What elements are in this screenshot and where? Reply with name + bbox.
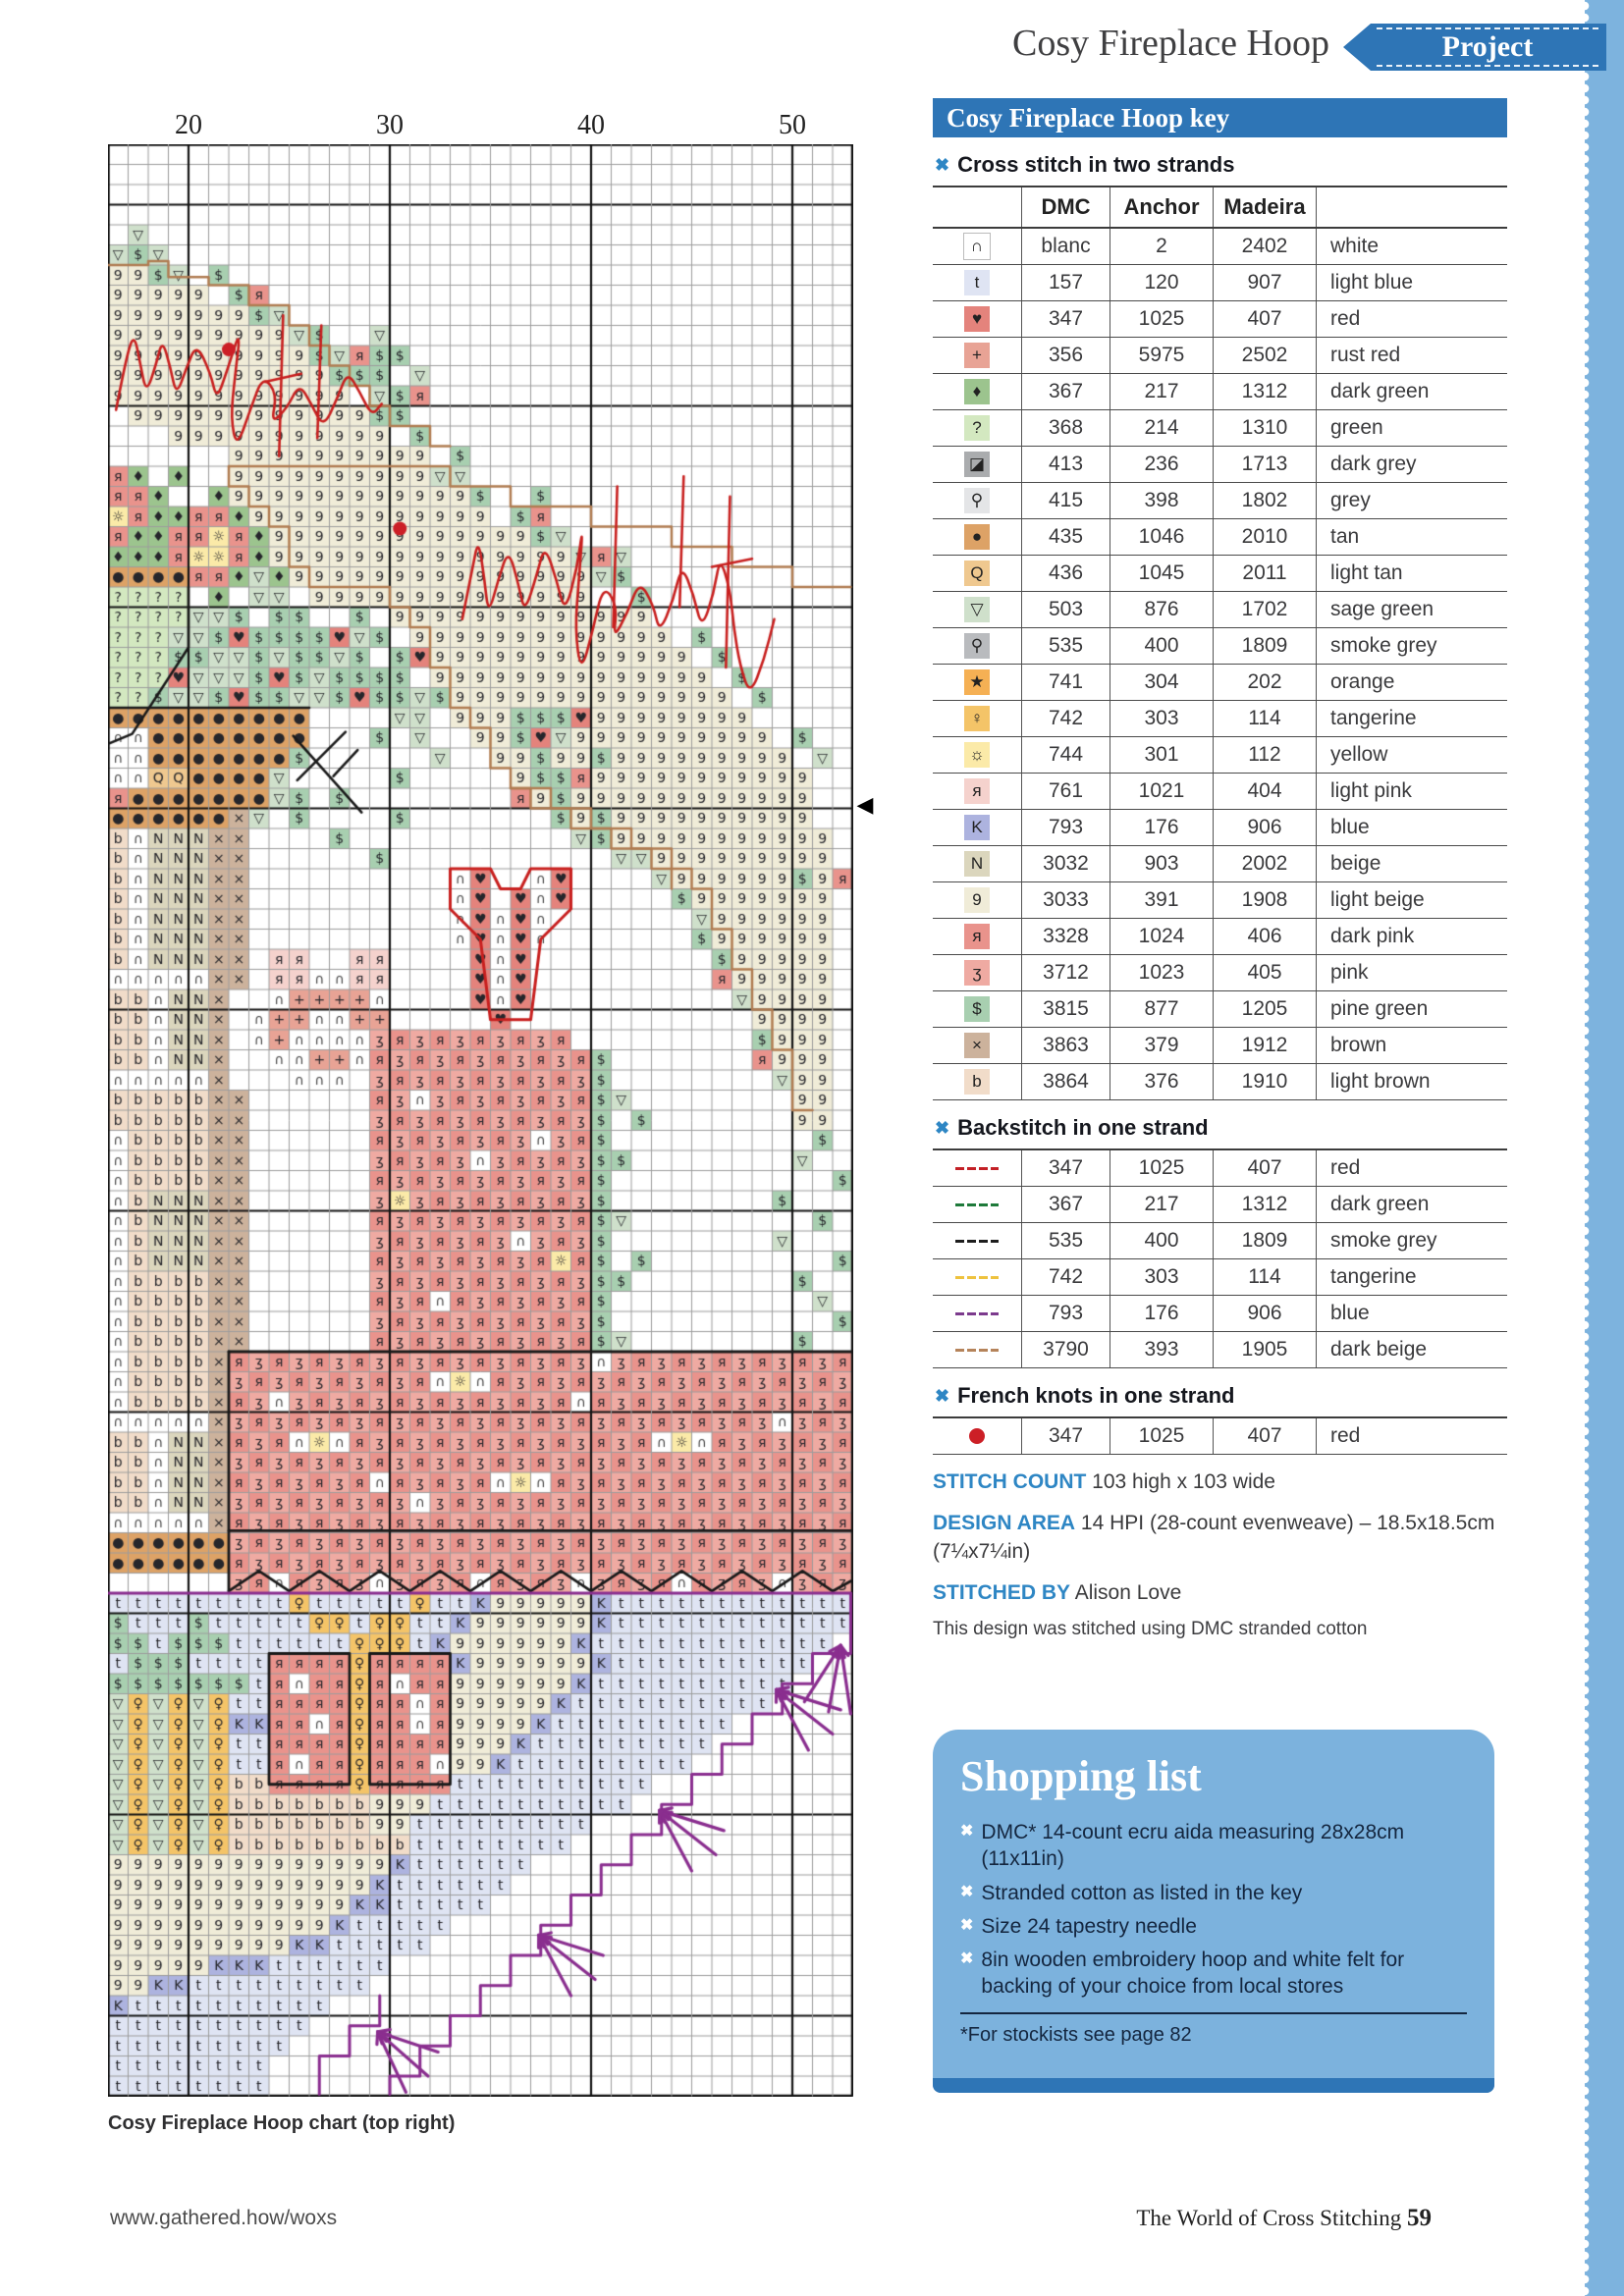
key-row: $38158771205pine green: [933, 991, 1507, 1028]
anchor-number: 1024: [1110, 919, 1213, 954]
colour-name: brown: [1316, 1028, 1507, 1063]
key-symbol-cell: $: [933, 991, 1021, 1027]
dmc-number: 3712: [1021, 955, 1110, 990]
key-symbol-cell: N: [933, 846, 1021, 881]
key-row: 930333911908light beige: [933, 882, 1507, 919]
key-row: ?3682141310green: [933, 410, 1507, 447]
key-row: я7611021404light pink: [933, 774, 1507, 810]
key-row: ʒ37121023405pink: [933, 955, 1507, 991]
dmc-number: 503: [1021, 592, 1110, 627]
key-row: +35659752502rust red: [933, 338, 1507, 374]
footer-page-number: 59: [1407, 2205, 1432, 2231]
dmc-number: 435: [1021, 519, 1110, 555]
dmc-number: 535: [1021, 628, 1110, 664]
dmc-number: 3032: [1021, 846, 1110, 881]
shopping-item-text: DMC* 14-count ecru aida measuring 28x28c…: [981, 1819, 1467, 1873]
madeira-number: 404: [1213, 774, 1316, 809]
dmc-number: 436: [1021, 556, 1110, 591]
colour-name: smoke grey: [1316, 628, 1507, 664]
madeira-number: 1312: [1213, 1187, 1316, 1222]
key-symbol-cell: ☼: [933, 737, 1021, 773]
madeira-number: 1205: [1213, 991, 1316, 1027]
colour-name: grey: [1316, 483, 1507, 518]
colour-name: tan: [1316, 519, 1507, 555]
key-symbol-cell: ♥: [933, 301, 1021, 337]
dmc-number: 368: [1021, 410, 1110, 446]
anchor-number: 1023: [1110, 955, 1213, 990]
dmc-number: 347: [1021, 1418, 1110, 1454]
chart-center-marker-icon: ◀: [857, 794, 874, 816]
key-symbol-cell: Q: [933, 556, 1021, 591]
key-col-dmc: DMC: [1021, 187, 1110, 227]
anchor-number: 1045: [1110, 556, 1213, 591]
key-row: ☼744301112yellow: [933, 737, 1507, 774]
footer-magazine: The World of Cross Stitching 59: [1136, 2205, 1432, 2232]
madeira-number: 405: [1213, 955, 1316, 990]
dmc-number: 356: [1021, 338, 1110, 373]
dmc-number: 742: [1021, 701, 1110, 736]
thread-symbol: ʒ: [964, 960, 990, 986]
backstitch-line-cell: [933, 1296, 1021, 1331]
anchor-number: 217: [1110, 1187, 1213, 1222]
backstitch-line-cell: [933, 1259, 1021, 1295]
french-knots-icon: ✖: [935, 1386, 949, 1407]
madeira-number: 407: [1213, 301, 1316, 337]
key-symbol-cell: 9: [933, 882, 1021, 918]
thread-symbol: N: [964, 851, 990, 877]
madeira-number: 1905: [1213, 1332, 1316, 1367]
anchor-number: 120: [1110, 265, 1213, 300]
thread-symbol: ⚲: [964, 488, 990, 513]
backstitch-line-sample: [955, 1312, 999, 1315]
madeira-number: 2402: [1213, 229, 1316, 264]
key-row: ♥3471025407red: [933, 301, 1507, 338]
madeira-number: 907: [1213, 265, 1316, 300]
dmc-number: 415: [1021, 483, 1110, 518]
thread-symbol: ●: [964, 524, 990, 550]
backstitch-line-sample: [955, 1276, 999, 1279]
madeira-number: 1908: [1213, 882, 1316, 918]
anchor-number: 5975: [1110, 338, 1213, 373]
anchor-number: 2: [1110, 229, 1213, 264]
key-symbol-cell: ∩: [933, 229, 1021, 264]
madeira-number: 1910: [1213, 1064, 1316, 1099]
french-knot-cell: [933, 1418, 1021, 1454]
thread-symbol: ☼: [964, 742, 990, 768]
dmc-number: 3328: [1021, 919, 1110, 954]
shopping-list-divider: [960, 2012, 1467, 2014]
colour-name: sage green: [1316, 592, 1507, 627]
colour-name: pine green: [1316, 991, 1507, 1027]
bullet-x-icon: ✖: [960, 1949, 973, 2001]
key-row: ×38633791912brown: [933, 1028, 1507, 1064]
shopping-list-item: ✖Stranded cotton as listed in the key: [960, 1880, 1467, 1906]
anchor-number: 379: [1110, 1028, 1213, 1063]
key-row: ∩blanc22402white: [933, 229, 1507, 265]
anchor-number: 236: [1110, 447, 1213, 482]
dmc-number: 347: [1021, 301, 1110, 337]
dmc-number: 3864: [1021, 1064, 1110, 1099]
anchor-number: 303: [1110, 1259, 1213, 1295]
key-symbol-cell: ◪: [933, 447, 1021, 482]
colour-name: blue: [1316, 1296, 1507, 1331]
shopping-item-text: Size 24 tapestry needle: [981, 1913, 1467, 1940]
stitch-count-value: 103 high x 103 wide: [1092, 1470, 1275, 1493]
anchor-number: 1025: [1110, 1150, 1213, 1186]
shopping-list-box: Shopping list ✖DMC* 14-count ecru aida m…: [933, 1730, 1494, 2093]
thread-symbol: ×: [964, 1033, 990, 1058]
cross-stitch-section-header: ✖ Cross stitch in two strands: [935, 152, 1507, 178]
colour-name: red: [1316, 1418, 1507, 1454]
colour-name: light brown: [1316, 1064, 1507, 1099]
dmc-number: 3863: [1021, 1028, 1110, 1063]
key-symbol-cell: b: [933, 1064, 1021, 1099]
key-row: ⚲5354001809smoke grey: [933, 628, 1507, 665]
design-note: This design was stitched using DMC stran…: [933, 1619, 1507, 1640]
key-table-header-row: DMC Anchor Madeira: [933, 187, 1507, 229]
madeira-number: 2011: [1213, 556, 1316, 591]
anchor-number: 400: [1110, 628, 1213, 664]
backstitch-line-cell: [933, 1332, 1021, 1367]
shopping-list-item: ✖Size 24 tapestry needle: [960, 1913, 1467, 1940]
shopping-item-text: Stranded cotton as listed in the key: [981, 1880, 1467, 1906]
thread-symbol: t: [964, 270, 990, 295]
cross-stitch-icon: ✖: [935, 155, 949, 176]
key-col-anchor: Anchor: [1110, 187, 1213, 227]
key-symbol-cell: ♀: [933, 701, 1021, 736]
french-knots-table: 3471025407red: [933, 1416, 1507, 1455]
key-symbol-cell: ▽: [933, 592, 1021, 627]
backstitch-row: 37903931905dark beige: [933, 1332, 1507, 1368]
thread-symbol: ⚲: [964, 633, 990, 659]
key-symbol-cell: ⚲: [933, 628, 1021, 664]
anchor-number: 214: [1110, 410, 1213, 446]
shopping-list-title: Shopping list: [960, 1751, 1467, 1801]
colour-name: light tan: [1316, 556, 1507, 591]
colour-name: dark grey: [1316, 447, 1507, 482]
madeira-number: 906: [1213, 1296, 1316, 1331]
anchor-number: 391: [1110, 882, 1213, 918]
thread-symbol: ♀: [964, 706, 990, 731]
key-symbol-cell: ʒ: [933, 955, 1021, 990]
anchor-number: 376: [1110, 1064, 1213, 1099]
dmc-number: 535: [1021, 1223, 1110, 1258]
backstitch-section-title: Backstitch in one strand: [957, 1115, 1209, 1141]
key-row: K793176906blue: [933, 810, 1507, 846]
key-symbol-cell: ⚲: [933, 483, 1021, 518]
madeira-number: 112: [1213, 737, 1316, 773]
colour-name: dark beige: [1316, 1332, 1507, 1367]
chart-axis-label: 20: [175, 110, 202, 141]
chart-caption: Cosy Fireplace Hoop chart (top right): [108, 2112, 455, 2135]
footer-url: www.gathered.how/woxs: [110, 2207, 337, 2230]
colour-name: blue: [1316, 810, 1507, 845]
cross-stitch-section-title: Cross stitch in two strands: [957, 152, 1234, 178]
backstitch-row: 5354001809smoke grey: [933, 1223, 1507, 1259]
colour-name: pink: [1316, 955, 1507, 990]
thread-symbol: +: [964, 343, 990, 368]
madeira-number: 2010: [1213, 519, 1316, 555]
thread-symbol: ★: [964, 669, 990, 695]
key-row: ♀742303114tangerine: [933, 701, 1507, 737]
key-symbol-cell: ●: [933, 519, 1021, 555]
thread-symbol: Q: [964, 561, 990, 586]
colour-name: white: [1316, 229, 1507, 264]
dmc-number: 3815: [1021, 991, 1110, 1027]
colour-name: dark green: [1316, 1187, 1507, 1222]
anchor-number: 400: [1110, 1223, 1213, 1258]
madeira-number: 407: [1213, 1150, 1316, 1186]
anchor-number: 301: [1110, 737, 1213, 773]
key-symbol-cell: я: [933, 774, 1021, 809]
key-symbol-cell: +: [933, 338, 1021, 373]
dmc-number: 413: [1021, 447, 1110, 482]
dmc-number: 761: [1021, 774, 1110, 809]
colour-name: orange: [1316, 665, 1507, 700]
anchor-number: 1025: [1110, 1418, 1213, 1454]
french-knot-dot: [969, 1428, 985, 1444]
french-knots-section-header: ✖ French knots in one strand: [935, 1383, 1507, 1409]
bullet-x-icon: ✖: [960, 1916, 973, 1940]
key-title: Cosy Fireplace Hoop key: [947, 103, 1229, 133]
key-col-madeira: Madeira: [1213, 187, 1316, 227]
thread-symbol: ◪: [964, 452, 990, 477]
backstitch-row: 793176906blue: [933, 1296, 1507, 1332]
backstitch-line-sample: [955, 1167, 999, 1170]
stitched-by-value: Alison Love: [1075, 1581, 1182, 1604]
stockists-note: *For stockists see page 82: [960, 2024, 1467, 2047]
backstitch-line-sample: [955, 1349, 999, 1352]
madeira-number: 114: [1213, 1259, 1316, 1295]
backstitch-line-cell: [933, 1150, 1021, 1186]
dmc-number: 793: [1021, 1296, 1110, 1331]
backstitch-row: 3672171312dark green: [933, 1187, 1507, 1223]
chart-axis-label: 50: [779, 110, 806, 141]
stitch-count-label: STITCH COUNT: [933, 1470, 1086, 1493]
dmc-number: 793: [1021, 810, 1110, 845]
bullet-x-icon: ✖: [960, 1883, 973, 1906]
madeira-number: 2002: [1213, 846, 1316, 881]
thread-symbol: ♥: [964, 306, 990, 332]
anchor-number: 176: [1110, 810, 1213, 845]
shopping-list-bottom-bar: [933, 2078, 1494, 2093]
backstitch-row: 3471025407red: [933, 1150, 1507, 1187]
key-row: ◪4132361713dark grey: [933, 447, 1507, 483]
footer-magazine-title: The World of Cross Stitching: [1136, 2206, 1401, 2230]
cross-stitch-table: DMC Anchor Madeira ∩blanc22402whitet1571…: [933, 186, 1507, 1100]
key-symbol-cell: ♦: [933, 374, 1021, 409]
dmc-number: 3790: [1021, 1332, 1110, 1367]
backstitch-section-header: ✖ Backstitch in one strand: [935, 1115, 1507, 1141]
colour-name: dark green: [1316, 374, 1507, 409]
colour-name: tangerine: [1316, 701, 1507, 736]
colour-name: yellow: [1316, 737, 1507, 773]
colour-name: red: [1316, 1150, 1507, 1186]
chart-axis-label: 30: [376, 110, 404, 141]
key-row: ⚲4153981802grey: [933, 483, 1507, 519]
page-edge-strip: [1585, 0, 1624, 2296]
madeira-number: 406: [1213, 919, 1316, 954]
anchor-number: 877: [1110, 991, 1213, 1027]
key-row: t157120907light blue: [933, 265, 1507, 301]
key-col-name: [1316, 187, 1507, 227]
anchor-number: 398: [1110, 483, 1213, 518]
anchor-number: 217: [1110, 374, 1213, 409]
dmc-number: 347: [1021, 1150, 1110, 1186]
colour-name: light beige: [1316, 882, 1507, 918]
project-ribbon-label: Project: [1442, 30, 1534, 64]
madeira-number: 202: [1213, 665, 1316, 700]
madeira-number: 1809: [1213, 1223, 1316, 1258]
madeira-number: 407: [1213, 1418, 1316, 1454]
colour-name: rust red: [1316, 338, 1507, 373]
backstitch-icon: ✖: [935, 1118, 949, 1139]
thread-symbol: $: [964, 996, 990, 1022]
madeira-number: 1912: [1213, 1028, 1316, 1063]
anchor-number: 303: [1110, 701, 1213, 736]
dmc-number: 744: [1021, 737, 1110, 773]
design-area-label: DESIGN AREA: [933, 1512, 1075, 1534]
anchor-number: 903: [1110, 846, 1213, 881]
french-knots-section-title: French knots in one strand: [957, 1383, 1234, 1409]
key-symbol-cell: K: [933, 810, 1021, 845]
key-row: ▽5038761702sage green: [933, 592, 1507, 628]
colour-name: dark pink: [1316, 919, 1507, 954]
chart-axis-label: 40: [577, 110, 605, 141]
thread-symbol: b: [964, 1069, 990, 1095]
madeira-number: 114: [1213, 701, 1316, 736]
key-col-symbol: [933, 187, 1021, 227]
colour-name: smoke grey: [1316, 1223, 1507, 1258]
madeira-number: 2502: [1213, 338, 1316, 373]
colour-name: beige: [1316, 846, 1507, 881]
key-symbol-cell: ★: [933, 665, 1021, 700]
key-symbol-cell: ?: [933, 410, 1021, 446]
key-row: ♦3672171312dark green: [933, 374, 1507, 410]
french-knot-row: 3471025407red: [933, 1418, 1507, 1455]
backstitch-line-cell: [933, 1187, 1021, 1222]
madeira-number: 906: [1213, 810, 1316, 845]
anchor-number: 304: [1110, 665, 1213, 700]
key-title-bar: Cosy Fireplace Hoop key: [933, 98, 1507, 137]
key-row: N30329032002beige: [933, 846, 1507, 882]
madeira-number: 1312: [1213, 374, 1316, 409]
backstitch-line-cell: [933, 1223, 1021, 1258]
project-ribbon: Project: [1343, 24, 1606, 71]
backstitch-line-sample: [955, 1240, 999, 1243]
anchor-number: 393: [1110, 1332, 1213, 1367]
thread-symbol: 9: [964, 887, 990, 913]
dmc-number: 741: [1021, 665, 1110, 700]
dmc-number: 367: [1021, 374, 1110, 409]
thread-symbol: ∩: [963, 233, 991, 260]
colour-name: green: [1316, 410, 1507, 446]
stitched-by-label: STITCHED BY: [933, 1581, 1070, 1604]
colour-name: tangerine: [1316, 1259, 1507, 1295]
anchor-number: 176: [1110, 1296, 1213, 1331]
colour-name: light pink: [1316, 774, 1507, 809]
key-symbol-cell: я: [933, 919, 1021, 954]
thread-symbol: ▽: [964, 597, 990, 622]
thread-symbol: K: [964, 815, 990, 840]
colour-name: light blue: [1316, 265, 1507, 300]
key-row: ★741304202orange: [933, 665, 1507, 701]
key-row: b38643761910light brown: [933, 1064, 1507, 1100]
thread-symbol: ♦: [964, 379, 990, 404]
key-panel: Cosy Fireplace Hoop key ✖ Cross stitch i…: [933, 98, 1507, 1640]
dmc-number: 367: [1021, 1187, 1110, 1222]
thread-symbol: я: [964, 924, 990, 949]
backstitch-row: 742303114tangerine: [933, 1259, 1507, 1296]
dmc-number: 157: [1021, 265, 1110, 300]
anchor-number: 876: [1110, 592, 1213, 627]
shopping-item-text: 8in wooden embroidery hoop and white fel…: [981, 1947, 1467, 2001]
key-symbol-cell: ×: [933, 1028, 1021, 1063]
thread-symbol: я: [964, 778, 990, 804]
stitched-by-line: STITCHED BY Alison Love: [933, 1579, 1507, 1607]
key-symbol-cell: t: [933, 265, 1021, 300]
dmc-number: blanc: [1021, 229, 1110, 264]
page-title: Cosy Fireplace Hoop: [1012, 22, 1329, 65]
key-row: ●43510462010tan: [933, 519, 1507, 556]
key-row: я33281024406dark pink: [933, 919, 1507, 955]
bullet-x-icon: ✖: [960, 1822, 973, 1873]
colour-name: red: [1316, 301, 1507, 337]
dmc-number: 742: [1021, 1259, 1110, 1295]
madeira-number: 1802: [1213, 483, 1316, 518]
cross-stitch-chart: [108, 144, 853, 2097]
madeira-number: 1702: [1213, 592, 1316, 627]
shopping-list-item: ✖DMC* 14-count ecru aida measuring 28x28…: [960, 1819, 1467, 1873]
anchor-number: 1025: [1110, 301, 1213, 337]
key-row: Q43610452011light tan: [933, 556, 1507, 592]
madeira-number: 1310: [1213, 410, 1316, 446]
design-area-line: DESIGN AREA 14 HPI (28-count evenweave) …: [933, 1510, 1507, 1566]
stitch-count-line: STITCH COUNT 103 high x 103 wide: [933, 1468, 1507, 1496]
thread-symbol: ?: [964, 415, 990, 441]
anchor-number: 1046: [1110, 519, 1213, 555]
anchor-number: 1021: [1110, 774, 1213, 809]
madeira-number: 1713: [1213, 447, 1316, 482]
madeira-number: 1809: [1213, 628, 1316, 664]
backstitch-line-sample: [955, 1203, 999, 1206]
backstitch-table: 3471025407red3672171312dark green5354001…: [933, 1148, 1507, 1368]
shopping-list-item: ✖8in wooden embroidery hoop and white fe…: [960, 1947, 1467, 2001]
dmc-number: 3033: [1021, 882, 1110, 918]
magazine-page: Cosy Fireplace Hoop Project 20304050 ◀ C…: [0, 0, 1624, 2296]
